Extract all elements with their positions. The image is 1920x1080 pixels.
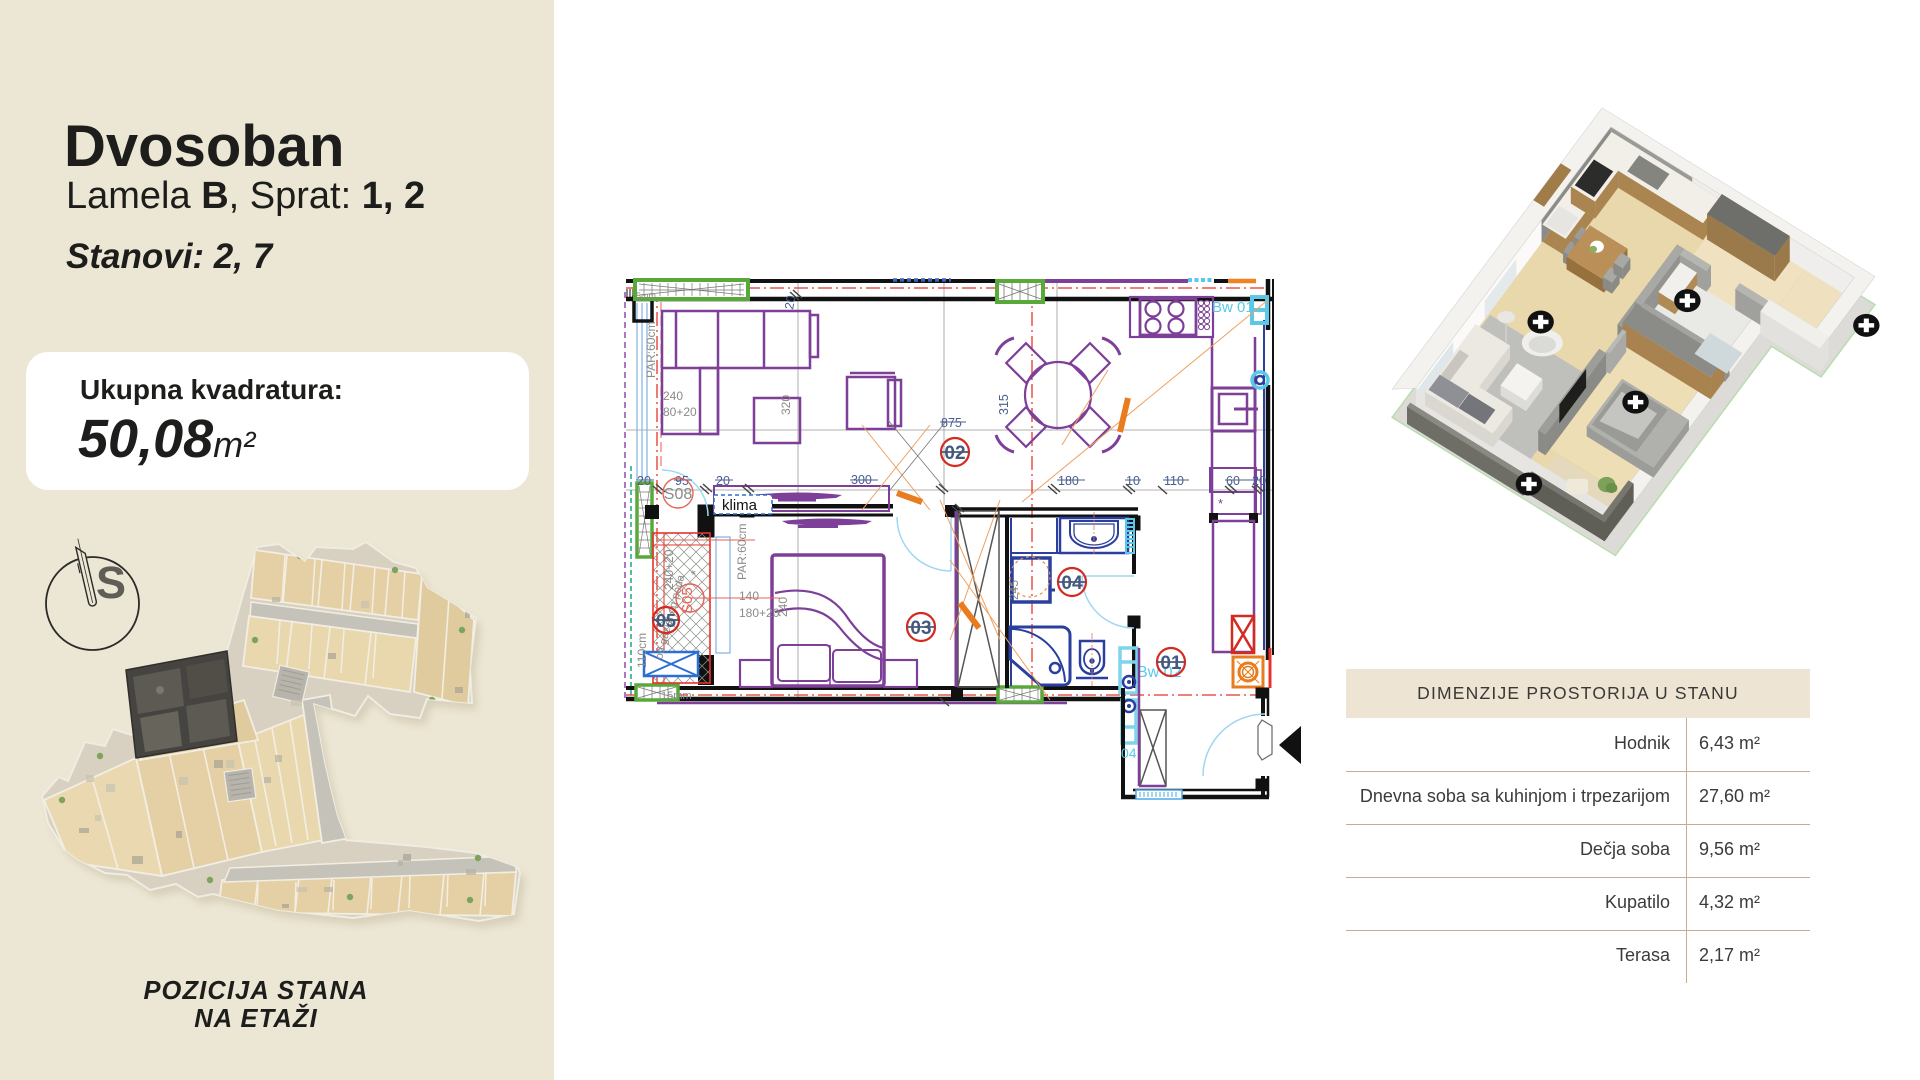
svg-text:80+20: 80+20 <box>663 405 697 419</box>
svg-text:10: 10 <box>1126 474 1140 488</box>
svg-text:15mm: 15mm <box>661 690 692 702</box>
svg-text:Bw 01: Bw 01 <box>1212 299 1254 316</box>
svg-text:60: 60 <box>1226 474 1240 488</box>
svg-text:01: 01 <box>1160 653 1182 674</box>
svg-text:875: 875 <box>941 416 962 430</box>
svg-text:5mm: 5mm <box>636 291 656 301</box>
svg-text:03: 03 <box>910 618 931 639</box>
svg-text:PAR:60cm: PAR:60cm <box>644 322 658 378</box>
svg-text:180: 180 <box>1058 474 1079 488</box>
svg-text:*: * <box>1218 496 1223 511</box>
svg-text:20: 20 <box>1252 474 1266 488</box>
svg-text:05: 05 <box>656 611 676 631</box>
svg-text:320: 320 <box>779 395 793 415</box>
svg-text:20: 20 <box>716 474 730 488</box>
svg-text:110: 110 <box>1164 474 1184 488</box>
svg-text:04: 04 <box>1061 573 1083 594</box>
svg-text:245: 245 <box>1007 580 1021 600</box>
svg-text:180+20: 180+20 <box>739 606 780 620</box>
svg-text:klima: klima <box>722 497 758 514</box>
svg-text:240: 240 <box>776 597 790 617</box>
svg-text:S08: S08 <box>664 486 693 503</box>
svg-text:02: 02 <box>944 443 965 464</box>
svg-text:04: 04 <box>1121 745 1137 761</box>
svg-text:315: 315 <box>997 394 1011 415</box>
svg-text:S05: S05 <box>679 587 696 614</box>
svg-text:20: 20 <box>782 294 798 310</box>
svg-text:20: 20 <box>637 474 651 488</box>
svg-text:110cm: 110cm <box>635 633 649 668</box>
svg-text:140: 140 <box>739 589 759 603</box>
svg-text:240: 240 <box>663 389 683 403</box>
svg-text:PAR:60cm: PAR:60cm <box>735 524 749 580</box>
svg-text:*: * <box>688 570 703 575</box>
